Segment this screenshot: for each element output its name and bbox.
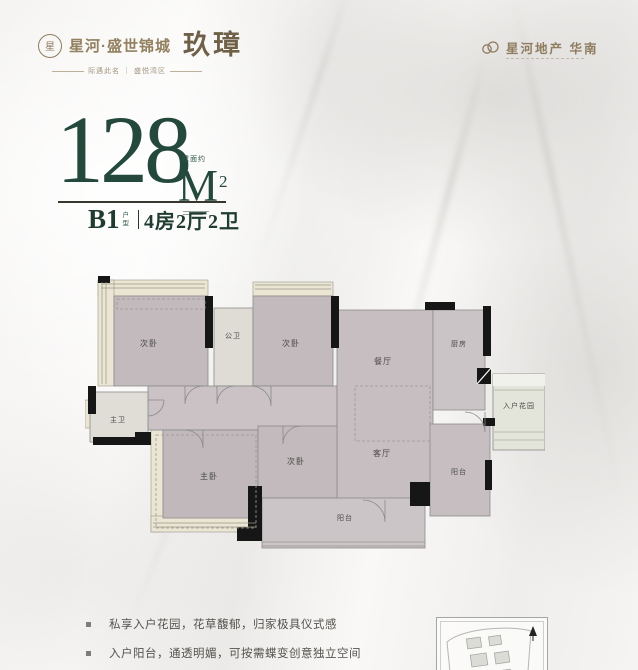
room-bedroom-a	[114, 296, 208, 386]
poster-canvas: 星 星河·盛世锦城 玖璋 际遇此名 ｜ 盛悦湾区 星河地产 华南 128 建面约…	[0, 0, 638, 670]
site-map	[436, 617, 548, 670]
bullet-square-icon	[86, 622, 91, 627]
developer-logo: 星河地产 华南	[480, 38, 598, 57]
room-hallway	[148, 386, 337, 430]
product-name: 玖璋	[183, 32, 243, 59]
project-tagline: 际遇此名 ｜ 盛悦湾区	[52, 66, 202, 76]
room-label: 入户花园	[503, 401, 535, 410]
logo-glyph: 星	[45, 38, 55, 53]
room-label: 餐厅	[374, 357, 392, 366]
project-logo-icon: 星	[38, 34, 62, 58]
cloud-icon	[480, 40, 500, 55]
room-label: 主卫	[110, 415, 126, 424]
room-label: 次卧	[287, 456, 305, 466]
feature-item: 私享入户花园，花草馥郁，归家极具仪式感	[86, 616, 337, 632]
project-logo: 星 星河·盛世锦城 玖璋	[38, 32, 243, 59]
unit-type-row: B1 户 型 4房2厅2卫	[88, 205, 240, 234]
room-label: 主卧	[200, 471, 218, 481]
unit-type-label-top: 户	[123, 212, 130, 219]
site-map-sketch	[437, 618, 545, 670]
project-name: 星河·盛世锦城	[69, 35, 171, 56]
unit-type-code: B1	[88, 206, 120, 233]
bullet-square-icon	[86, 651, 91, 656]
room-label: 次卧	[140, 338, 158, 348]
feature-text: 入户阳台，通透明媚，可按需蝶变创意独立空间	[109, 645, 361, 661]
area-unit: M	[178, 161, 218, 211]
floor-plan: 次卧 公卫 次卧 餐厅 厨房 入户花园 主卫 主卧 次卧 客厅 阳台 阳台	[85, 272, 545, 569]
feature-item: 入户阳台，通透明媚，可按需蝶变创意独立空间	[86, 645, 361, 661]
unit-type-label: 户 型	[123, 212, 130, 226]
unit-type-label-bottom: 型	[123, 220, 130, 227]
room-label: 阳台	[451, 467, 467, 476]
room-label: 次卧	[282, 338, 300, 348]
room-label: 阳台	[337, 513, 353, 522]
room-public-bath	[214, 308, 253, 386]
unit-type-divider	[138, 210, 139, 229]
room-label: 厨房	[451, 339, 467, 348]
marble-vein	[251, 0, 354, 283]
unit-layout: 4房2厅2卫	[144, 205, 240, 234]
divider-rule	[58, 201, 226, 203]
feature-text: 私享入户花园，花草馥郁，归家极具仪式感	[109, 616, 337, 632]
area-superscript: 2	[219, 172, 228, 191]
developer-subtext-line	[506, 57, 584, 59]
room-balcony	[262, 498, 425, 548]
room-kitchen	[433, 310, 485, 410]
developer-name: 星河地产 华南	[506, 38, 598, 57]
room-dining-living	[337, 310, 433, 500]
tagline-text: 际遇此名 ｜ 盛悦湾区	[88, 66, 166, 76]
area-block: 128 建面约 M2	[56, 106, 188, 194]
room-label: 客厅	[373, 448, 391, 458]
room-label: 公卫	[225, 332, 241, 340]
area-value: 128	[56, 106, 188, 194]
floor-plan-drawing: 次卧 公卫 次卧 餐厅 厨房 入户花园 主卫 主卧 次卧 客厅 阳台 阳台	[85, 272, 545, 564]
